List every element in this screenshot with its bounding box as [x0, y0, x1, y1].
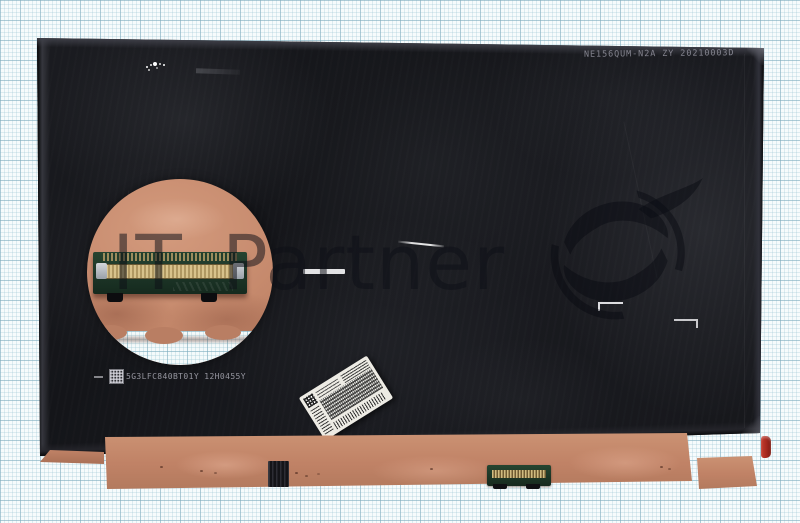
connector-mount-foot [107, 293, 123, 302]
foil-edge-bump [95, 325, 127, 340]
panel-top-right-corner-glint [747, 48, 764, 65]
copper-speck [660, 466, 663, 468]
foil-edge-bump [205, 325, 241, 340]
connector-gold-contacts [105, 264, 235, 279]
copper-speck [200, 470, 203, 472]
panel-serial-text: 5G3LFC840BT01Y 12H0455Y [126, 372, 246, 381]
product-photo-scene: NE156QUM-N2A ZY 20210003D [0, 0, 800, 523]
foil-edge-bump [145, 327, 183, 344]
white-dash-mark [303, 269, 345, 274]
panel-right-seam-line [744, 54, 745, 428]
copper-foil-right-piece [697, 456, 757, 489]
panel-serial-label: 5G3LFC840BT01Y 12H0455Y [94, 370, 246, 383]
copper-speck [160, 466, 163, 468]
white-corner-mark-left [598, 302, 623, 311]
pcb-trace-pattern [173, 282, 233, 291]
panel-model-marking: NE156QUM-N2A ZY 20210003D [584, 48, 735, 60]
white-corner-mark-right [674, 319, 698, 328]
edp-socket [487, 465, 551, 486]
edp-connector-closeup-inset [87, 179, 273, 365]
red-pull-tab [761, 436, 771, 458]
edp-socket-foot [526, 484, 540, 489]
connector-pin-comb [103, 253, 237, 261]
edp-socket-foot [493, 484, 507, 489]
copper-speck [430, 468, 433, 470]
edp-socket-pins [492, 470, 546, 478]
copper-foil-bottom-strip [105, 433, 692, 489]
connector-latch-right [233, 263, 244, 279]
white-paint-speckles [146, 66, 148, 68]
connector-latch-left [96, 263, 107, 279]
copper-foil-sliver [40, 450, 104, 464]
edp-connector-pcb [93, 252, 247, 294]
qr-code-icon [110, 370, 123, 383]
panel-right-edge-bevel [753, 48, 764, 434]
tick-mark [94, 376, 103, 378]
copper-speck [295, 472, 298, 474]
connector-mount-foot [201, 293, 217, 302]
panel-left-edge-bevel [37, 38, 50, 458]
bottom-edge-component [268, 461, 289, 487]
